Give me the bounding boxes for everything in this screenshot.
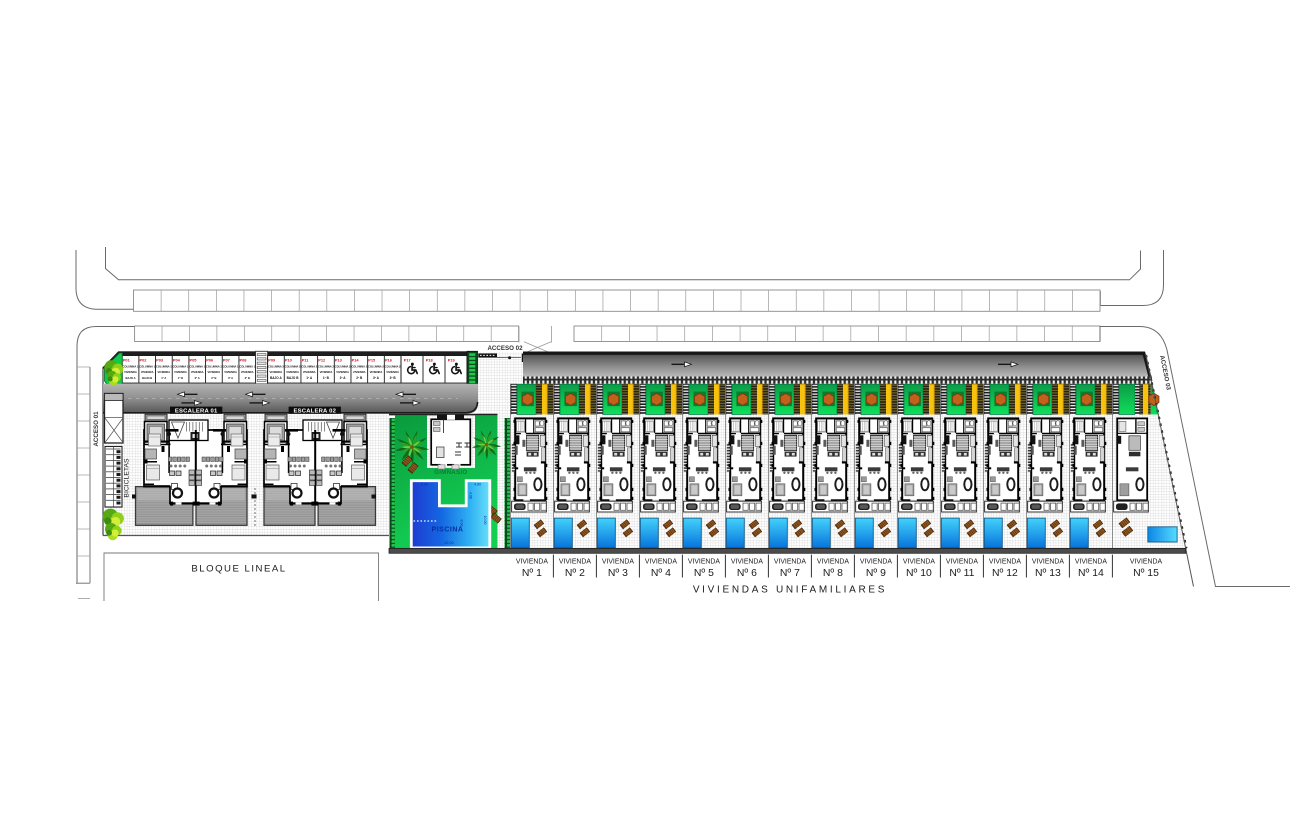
svg-text:VIVIENDA: VIVIENDA bbox=[241, 370, 254, 374]
svg-text:3º B: 3º B bbox=[245, 376, 250, 380]
svg-text:VIVIENDA: VIVIENDA bbox=[336, 370, 349, 374]
svg-text:Nº 4: Nº 4 bbox=[651, 568, 671, 579]
svg-text:BAJO B: BAJO B bbox=[287, 376, 300, 380]
svg-text:COLUMNA 1: COLUMNA 1 bbox=[189, 365, 205, 369]
svg-text:P09: P09 bbox=[268, 357, 276, 362]
svg-text:VIVIENDA: VIVIENDA bbox=[386, 370, 399, 374]
svg-text:P04: P04 bbox=[173, 357, 181, 362]
svg-text:COLUMNA 2: COLUMNA 2 bbox=[368, 365, 384, 369]
svg-text:Nº 9: Nº 9 bbox=[866, 568, 886, 579]
svg-text:VIVIENDAS UNIFAMILIARES: VIVIENDAS UNIFAMILIARES bbox=[693, 585, 887, 596]
svg-text:P19: P19 bbox=[448, 357, 456, 362]
svg-text:VIVIENDA: VIVIENDA bbox=[688, 559, 721, 566]
svg-text:P11: P11 bbox=[302, 357, 310, 362]
svg-text:P08: P08 bbox=[240, 357, 248, 362]
svg-text:Nº 15: Nº 15 bbox=[1133, 568, 1159, 579]
svg-text:COLUMNA 2: COLUMNA 2 bbox=[268, 365, 284, 369]
svg-text:P03: P03 bbox=[156, 357, 164, 362]
svg-text:1º B: 1º B bbox=[178, 376, 183, 380]
svg-text:Nº 8: Nº 8 bbox=[823, 568, 843, 579]
svg-text:12.00: 12.00 bbox=[444, 541, 454, 545]
svg-text:BAJO A: BAJO A bbox=[270, 376, 282, 380]
svg-text:2º A: 2º A bbox=[340, 376, 347, 380]
svg-text:VIVIENDA: VIVIENDA bbox=[286, 370, 299, 374]
svg-text:VIVIENDA: VIVIENDA bbox=[903, 559, 936, 566]
svg-text:VIVIENDA: VIVIENDA bbox=[208, 370, 221, 374]
svg-text:Nº 3: Nº 3 bbox=[608, 568, 628, 579]
svg-text:GIMNASIO: GIMNASIO bbox=[434, 469, 467, 476]
svg-text:VIVIENDA: VIVIENDA bbox=[353, 370, 366, 374]
svg-text:COLUMNA 2: COLUMNA 2 bbox=[285, 365, 301, 369]
svg-text:COLUMNA 1: COLUMNA 1 bbox=[239, 365, 255, 369]
svg-text:COLUMNA 2: COLUMNA 2 bbox=[335, 365, 351, 369]
svg-text:VIVIENDA: VIVIENDA bbox=[174, 370, 187, 374]
svg-text:P06: P06 bbox=[206, 357, 214, 362]
svg-text:VIVIENDA: VIVIENDA bbox=[516, 559, 549, 566]
svg-text:VIVIENDA: VIVIENDA bbox=[320, 370, 333, 374]
svg-text:COLUMNA 1: COLUMNA 1 bbox=[173, 365, 189, 369]
svg-text:VIVIENDA: VIVIENDA bbox=[860, 559, 893, 566]
svg-text:P10: P10 bbox=[285, 357, 292, 362]
svg-text:Nº 13: Nº 13 bbox=[1035, 568, 1061, 579]
svg-text:Nº 2: Nº 2 bbox=[565, 568, 585, 579]
svg-text:2º B: 2º B bbox=[356, 376, 363, 380]
svg-text:VIVIENDA: VIVIENDA bbox=[303, 370, 316, 374]
svg-text:BLOQUE LINEAL: BLOQUE LINEAL bbox=[191, 564, 286, 575]
svg-text:COLUMNA 2: COLUMNA 2 bbox=[301, 365, 317, 369]
svg-text:P05: P05 bbox=[190, 357, 198, 362]
svg-text:P17: P17 bbox=[404, 357, 411, 362]
svg-text:COLUMNA 2: COLUMNA 2 bbox=[318, 365, 334, 369]
svg-text:VIVIENDA: VIVIENDA bbox=[141, 370, 154, 374]
svg-text:Nº 10: Nº 10 bbox=[906, 568, 932, 579]
svg-text:BICICLETAS: BICICLETAS bbox=[124, 458, 131, 498]
svg-text:ACCESO 02: ACCESO 02 bbox=[487, 345, 523, 352]
svg-text:VIVIENDA: VIVIENDA bbox=[559, 559, 592, 566]
svg-text:VIVIENDA: VIVIENDA bbox=[270, 370, 283, 374]
svg-text:VIVIENDA: VIVIENDA bbox=[1075, 559, 1108, 566]
svg-text:2º B: 2º B bbox=[211, 376, 216, 380]
svg-text:VIVIENDA: VIVIENDA bbox=[124, 370, 137, 374]
svg-text:Nº 7: Nº 7 bbox=[780, 568, 800, 579]
svg-text:ESCALERA 01: ESCALERA 01 bbox=[175, 408, 218, 414]
svg-text:P02: P02 bbox=[140, 357, 148, 362]
svg-text:3º A: 3º A bbox=[373, 376, 380, 380]
svg-text:COLUMNA 1: COLUMNA 1 bbox=[123, 365, 139, 369]
svg-text:10.00: 10.00 bbox=[483, 516, 487, 525]
svg-text:Nº 1: Nº 1 bbox=[522, 568, 542, 579]
svg-text:VIVIENDA: VIVIENDA bbox=[989, 559, 1022, 566]
svg-text:Nº 14: Nº 14 bbox=[1078, 568, 1104, 579]
svg-text:P15: P15 bbox=[368, 357, 376, 362]
svg-text:1º A: 1º A bbox=[161, 376, 166, 380]
svg-text:1º A: 1º A bbox=[306, 376, 313, 380]
svg-text:Nº 5: Nº 5 bbox=[694, 568, 714, 579]
svg-text:P13: P13 bbox=[335, 357, 343, 362]
svg-text:VIVIENDA: VIVIENDA bbox=[731, 559, 764, 566]
svg-text:PISCINA: PISCINA bbox=[432, 527, 464, 534]
svg-text:VIVIENDA: VIVIENDA bbox=[602, 559, 635, 566]
svg-text:ESCALERA 02: ESCALERA 02 bbox=[294, 408, 337, 414]
svg-text:4.90: 4.90 bbox=[474, 483, 481, 487]
svg-text:BAJO A: BAJO A bbox=[125, 376, 135, 380]
svg-text:BAJO B: BAJO B bbox=[142, 376, 152, 380]
svg-text:8.00: 8.00 bbox=[460, 520, 464, 527]
svg-text:2º A: 2º A bbox=[195, 376, 200, 380]
svg-text:3º A: 3º A bbox=[228, 376, 233, 380]
svg-text:VIVIENDA: VIVIENDA bbox=[645, 559, 678, 566]
svg-text:COLUMNA 1: COLUMNA 1 bbox=[223, 365, 239, 369]
svg-text:5.00: 5.00 bbox=[421, 483, 428, 487]
svg-text:ACCESO 01: ACCESO 01 bbox=[93, 411, 100, 447]
svg-text:VIVIENDA: VIVIENDA bbox=[191, 370, 204, 374]
svg-text:COLUMNA 2: COLUMNA 2 bbox=[351, 365, 367, 369]
svg-text:1º B: 1º B bbox=[323, 376, 330, 380]
svg-text:VIVIENDA: VIVIENDA bbox=[370, 370, 383, 374]
svg-text:COLUMNA 2: COLUMNA 2 bbox=[385, 365, 401, 369]
svg-text:VIVIENDA: VIVIENDA bbox=[774, 559, 807, 566]
svg-text:P16: P16 bbox=[385, 357, 393, 362]
svg-text:P07: P07 bbox=[223, 357, 230, 362]
svg-text:Nº 12: Nº 12 bbox=[992, 568, 1018, 579]
svg-text:VIVIENDA: VIVIENDA bbox=[1130, 559, 1163, 566]
svg-text:VIVIENDA: VIVIENDA bbox=[157, 370, 170, 374]
svg-text:Nº 6: Nº 6 bbox=[737, 568, 757, 579]
svg-text:COLUMNA 1: COLUMNA 1 bbox=[139, 365, 155, 369]
svg-text:COLUMNA 1: COLUMNA 1 bbox=[206, 365, 222, 369]
svg-text:COLUMNA 1: COLUMNA 1 bbox=[156, 365, 172, 369]
svg-text:VIVIENDA: VIVIENDA bbox=[224, 370, 237, 374]
svg-text:P18: P18 bbox=[426, 357, 434, 362]
svg-text:3º B: 3º B bbox=[390, 376, 397, 380]
svg-text:VIVIENDA: VIVIENDA bbox=[946, 559, 979, 566]
svg-text:P01: P01 bbox=[123, 357, 131, 362]
svg-text:Nº 11: Nº 11 bbox=[949, 568, 974, 579]
svg-text:P14: P14 bbox=[352, 357, 360, 362]
svg-text:4.96: 4.96 bbox=[469, 492, 473, 499]
svg-text:P12: P12 bbox=[318, 357, 326, 362]
svg-text:VIVIENDA: VIVIENDA bbox=[1032, 559, 1065, 566]
svg-text:VIVIENDA: VIVIENDA bbox=[817, 559, 850, 566]
